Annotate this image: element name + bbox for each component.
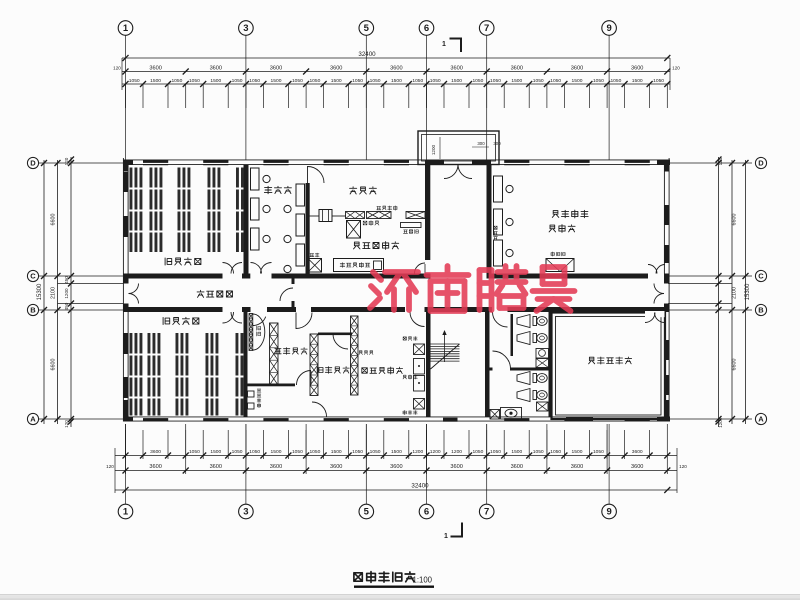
svg-text:1050: 1050 bbox=[232, 449, 243, 455]
svg-text:1050: 1050 bbox=[472, 78, 483, 84]
svg-text:120: 120 bbox=[672, 66, 680, 71]
svg-text:3600: 3600 bbox=[150, 449, 161, 455]
svg-text:1050: 1050 bbox=[249, 449, 260, 455]
svg-text:6600: 6600 bbox=[732, 214, 738, 226]
svg-text:1500: 1500 bbox=[210, 449, 221, 455]
svg-text:6: 6 bbox=[424, 23, 429, 34]
svg-text:1500: 1500 bbox=[572, 449, 583, 455]
svg-text:3600: 3600 bbox=[390, 66, 402, 72]
svg-text:D: D bbox=[758, 159, 764, 168]
svg-text:1200: 1200 bbox=[430, 449, 441, 455]
svg-text:3600: 3600 bbox=[450, 464, 462, 470]
svg-text:1500: 1500 bbox=[391, 449, 402, 455]
svg-text:3600: 3600 bbox=[632, 449, 643, 455]
svg-text:120: 120 bbox=[679, 464, 687, 469]
svg-text:5: 5 bbox=[364, 23, 370, 34]
svg-text:450: 450 bbox=[64, 302, 69, 310]
svg-text:3600: 3600 bbox=[210, 464, 222, 470]
svg-text:2100: 2100 bbox=[732, 287, 738, 299]
svg-text:1050: 1050 bbox=[533, 78, 544, 84]
svg-text:1200: 1200 bbox=[431, 144, 436, 155]
svg-text:32400: 32400 bbox=[358, 51, 376, 58]
svg-text:1500: 1500 bbox=[210, 78, 221, 84]
svg-text:1050: 1050 bbox=[129, 78, 140, 84]
svg-text:1050: 1050 bbox=[370, 449, 381, 455]
svg-text:1050: 1050 bbox=[352, 449, 363, 455]
svg-text:1500: 1500 bbox=[150, 78, 161, 84]
svg-text:3600: 3600 bbox=[450, 66, 462, 72]
svg-text:120: 120 bbox=[718, 157, 723, 165]
svg-text:1050: 1050 bbox=[550, 449, 561, 455]
svg-text:1500: 1500 bbox=[511, 449, 522, 455]
svg-text:B: B bbox=[758, 306, 764, 315]
svg-text:1050: 1050 bbox=[653, 78, 664, 84]
svg-text:7: 7 bbox=[484, 507, 489, 518]
svg-text:300: 300 bbox=[477, 141, 485, 146]
svg-text:1500: 1500 bbox=[572, 78, 583, 84]
svg-text:3600: 3600 bbox=[210, 66, 222, 72]
svg-text:120: 120 bbox=[113, 66, 121, 71]
svg-text:1050: 1050 bbox=[412, 78, 423, 84]
svg-text:1050: 1050 bbox=[472, 449, 483, 455]
svg-text:15300: 15300 bbox=[745, 283, 751, 300]
svg-text:1050: 1050 bbox=[593, 78, 604, 84]
svg-text:B: B bbox=[30, 306, 36, 315]
svg-text:D: D bbox=[30, 159, 36, 168]
svg-text:3600: 3600 bbox=[631, 464, 643, 470]
svg-text:3600: 3600 bbox=[330, 464, 342, 470]
svg-text:1050: 1050 bbox=[249, 78, 260, 84]
svg-text:1050: 1050 bbox=[189, 449, 200, 455]
svg-text:1500: 1500 bbox=[331, 78, 342, 84]
svg-text:5: 5 bbox=[364, 507, 370, 518]
svg-text:1050: 1050 bbox=[370, 78, 381, 84]
svg-text:3600: 3600 bbox=[330, 66, 342, 72]
svg-text:3600: 3600 bbox=[390, 464, 402, 470]
svg-text:3600: 3600 bbox=[511, 66, 523, 72]
svg-text:300: 300 bbox=[493, 141, 501, 146]
svg-text:1050: 1050 bbox=[292, 449, 303, 455]
svg-text:15300: 15300 bbox=[37, 283, 43, 300]
svg-text:3600: 3600 bbox=[571, 464, 583, 470]
svg-text:1: 1 bbox=[123, 507, 129, 518]
svg-text:1500: 1500 bbox=[331, 449, 342, 455]
svg-text:6600: 6600 bbox=[51, 359, 57, 371]
svg-text:3600: 3600 bbox=[571, 66, 583, 72]
svg-text:1050: 1050 bbox=[490, 78, 501, 84]
svg-text:9: 9 bbox=[606, 507, 611, 518]
svg-text:3600: 3600 bbox=[270, 464, 282, 470]
svg-text:450: 450 bbox=[64, 276, 69, 284]
svg-text:C: C bbox=[758, 272, 764, 281]
svg-text:1200: 1200 bbox=[451, 449, 462, 455]
svg-text:1050: 1050 bbox=[171, 78, 182, 84]
svg-text:A: A bbox=[758, 415, 764, 424]
svg-text:3600: 3600 bbox=[511, 464, 523, 470]
svg-text:1500: 1500 bbox=[271, 449, 282, 455]
svg-text:1050: 1050 bbox=[430, 78, 441, 84]
svg-text:1: 1 bbox=[442, 41, 446, 48]
svg-text:1500: 1500 bbox=[271, 78, 282, 84]
svg-text:1: 1 bbox=[444, 533, 448, 540]
svg-text:1050: 1050 bbox=[292, 78, 303, 84]
svg-text:3600: 3600 bbox=[270, 66, 282, 72]
svg-text:7: 7 bbox=[484, 23, 489, 34]
svg-text:120: 120 bbox=[64, 157, 69, 165]
svg-text:1050: 1050 bbox=[533, 449, 544, 455]
svg-text:2100: 2100 bbox=[51, 287, 57, 299]
svg-text:120: 120 bbox=[106, 464, 114, 469]
svg-text:1050: 1050 bbox=[610, 78, 621, 84]
svg-text:A: A bbox=[30, 415, 36, 424]
svg-text:1050: 1050 bbox=[490, 449, 501, 455]
svg-text:C: C bbox=[30, 272, 36, 281]
svg-text:1050: 1050 bbox=[189, 78, 200, 84]
svg-text:1500: 1500 bbox=[451, 78, 462, 84]
svg-text:9: 9 bbox=[606, 23, 611, 34]
svg-text:120: 120 bbox=[64, 420, 69, 428]
svg-text:3600: 3600 bbox=[149, 464, 161, 470]
svg-text:3: 3 bbox=[243, 507, 248, 518]
svg-text:1200: 1200 bbox=[412, 449, 423, 455]
svg-text:1500: 1500 bbox=[391, 78, 402, 84]
svg-text:1500: 1500 bbox=[632, 78, 643, 84]
svg-text:3600: 3600 bbox=[149, 66, 161, 72]
svg-text:3600: 3600 bbox=[631, 66, 643, 72]
svg-text:1050: 1050 bbox=[309, 449, 320, 455]
svg-text:1050: 1050 bbox=[550, 78, 561, 84]
svg-text:1500: 1500 bbox=[511, 78, 522, 84]
svg-text:120: 120 bbox=[718, 420, 723, 428]
svg-text:6600: 6600 bbox=[51, 214, 57, 226]
svg-text:1:100: 1:100 bbox=[413, 576, 433, 585]
svg-text:6600: 6600 bbox=[732, 359, 738, 371]
svg-text:1200: 1200 bbox=[64, 288, 69, 299]
svg-text:1050: 1050 bbox=[232, 78, 243, 84]
svg-text:1050: 1050 bbox=[309, 78, 320, 84]
svg-text:3: 3 bbox=[243, 23, 248, 34]
svg-text:1050: 1050 bbox=[593, 449, 604, 455]
svg-text:1: 1 bbox=[123, 23, 129, 34]
svg-text:6: 6 bbox=[424, 507, 429, 518]
svg-text:1050: 1050 bbox=[352, 78, 363, 84]
